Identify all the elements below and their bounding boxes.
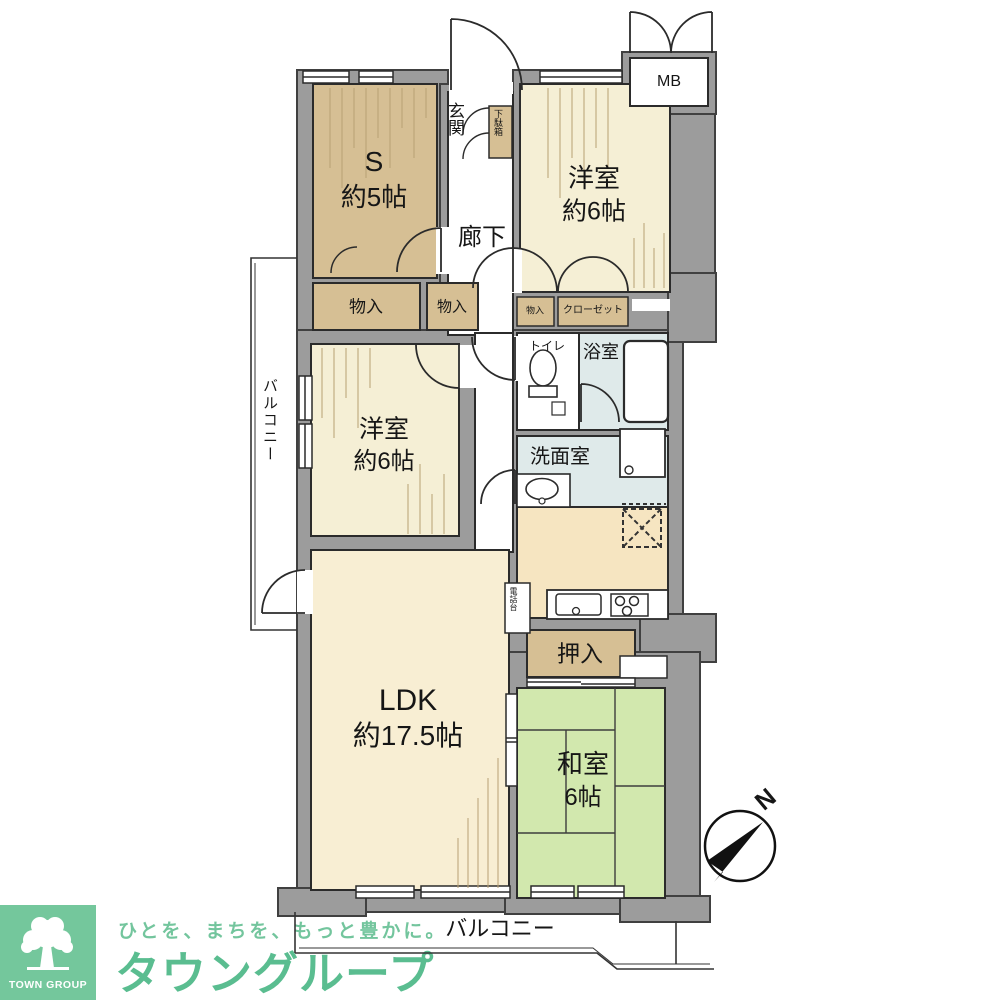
storage-1-box: [313, 283, 420, 330]
balcony-left-rail: [251, 258, 297, 630]
room-ldk-floor: [311, 550, 509, 890]
phone-stand-box: [505, 583, 530, 633]
washing-machine: [620, 429, 665, 477]
wash-basin: [517, 474, 570, 507]
kitchen-counter: [547, 590, 668, 619]
storage-2-box: [427, 283, 478, 330]
room-service-floor: [313, 84, 437, 278]
bathtub: [624, 341, 668, 422]
floorplan-drawing: [0, 0, 1000, 1000]
oshiire-box: [527, 630, 635, 677]
room-western-left-floor: [311, 344, 459, 536]
compass: [705, 811, 775, 882]
sliding-door-japanese-west: [506, 694, 517, 786]
storage-3-box: [517, 297, 554, 326]
alcove-box: [620, 656, 667, 678]
inner-hall-floor: [475, 333, 513, 552]
shoe-cabinet-box: [489, 106, 512, 158]
floorplan-page: ひとを、まちを、もっと豊かに。 タウングループ: [0, 0, 1000, 1000]
meter-box-doors: [630, 12, 712, 53]
room-western-top-floor: [520, 84, 670, 292]
closet-box: [558, 297, 628, 326]
room-japanese-floor: [517, 688, 665, 898]
meter-box: [630, 58, 708, 106]
logo-mark: [0, 905, 96, 1000]
entrance-door: [451, 19, 522, 90]
